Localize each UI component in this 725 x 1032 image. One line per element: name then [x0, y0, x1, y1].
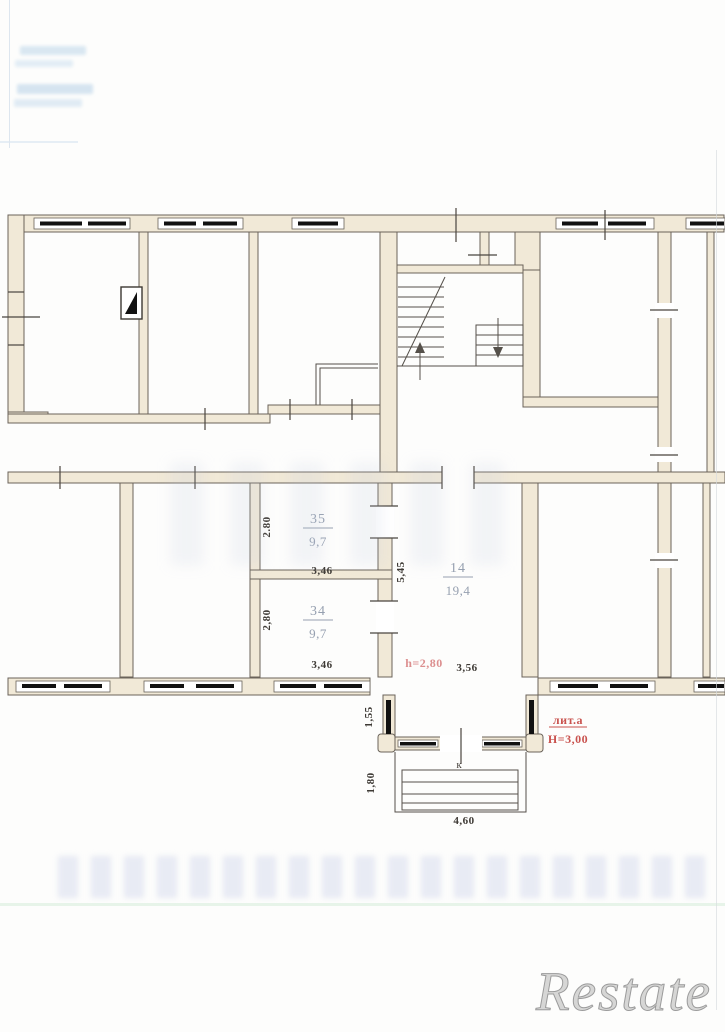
dim-room35-depth: 2.80 — [261, 516, 273, 537]
scan-artifact — [15, 60, 73, 67]
scan-artifact — [20, 46, 86, 55]
dim-porch-width: 4,60 — [453, 815, 474, 827]
room-35-label: 35 9,7 — [303, 512, 333, 549]
restate-watermark: Restate — [536, 960, 712, 1023]
dim-room35-width: 3,46 — [311, 565, 332, 577]
dim-vestibule-depth: 1,55 — [363, 706, 375, 727]
dim-room34-width: 3,46 — [311, 659, 332, 671]
stair-up-arrow — [415, 342, 425, 380]
svg-text:19,4: 19,4 — [446, 583, 471, 598]
walls — [8, 215, 725, 752]
scan-line-artifact — [0, 903, 725, 906]
dim-room14-depth: 5,45 — [395, 561, 407, 582]
staircase — [397, 277, 523, 380]
dim-room14-width: 3,56 — [456, 662, 477, 674]
svg-text:34: 34 — [310, 604, 326, 619]
vent-shaft-symbol — [121, 287, 142, 319]
stair-down-arrow — [493, 318, 503, 358]
dim-room34-depth: 2,80 — [261, 609, 273, 630]
paper-edge-right — [716, 150, 717, 1010]
svg-text:9,7: 9,7 — [309, 534, 327, 549]
ghost-watermark-band — [58, 856, 710, 898]
scanned-floor-plan-page: 35 9,7 3,46 2.80 34 9,7 3,46 2,80 14 19,… — [0, 0, 725, 1027]
scan-artifact — [17, 84, 93, 94]
svg-text:лит.а: лит.а — [553, 713, 583, 727]
svg-text:35: 35 — [310, 512, 326, 527]
svg-text:14: 14 — [450, 561, 466, 576]
scan-artifact — [14, 99, 82, 107]
dim-porch-depth: 1,80 — [365, 772, 377, 793]
paper-fold-line — [0, 141, 78, 143]
ceiling-height-note: h=2,80 — [405, 656, 443, 670]
porch-letter: к — [456, 759, 462, 771]
room-34-label: 34 9,7 — [303, 604, 333, 641]
svg-text:Н=3,00: Н=3,00 — [548, 732, 588, 746]
wall-notch — [316, 364, 378, 405]
room-14-label: 14 19,4 — [443, 561, 473, 598]
svg-text:9,7: 9,7 — [309, 626, 327, 641]
liter-annotation: лит.а Н=3,00 — [548, 713, 588, 746]
paper-edge-left — [9, 0, 10, 148]
